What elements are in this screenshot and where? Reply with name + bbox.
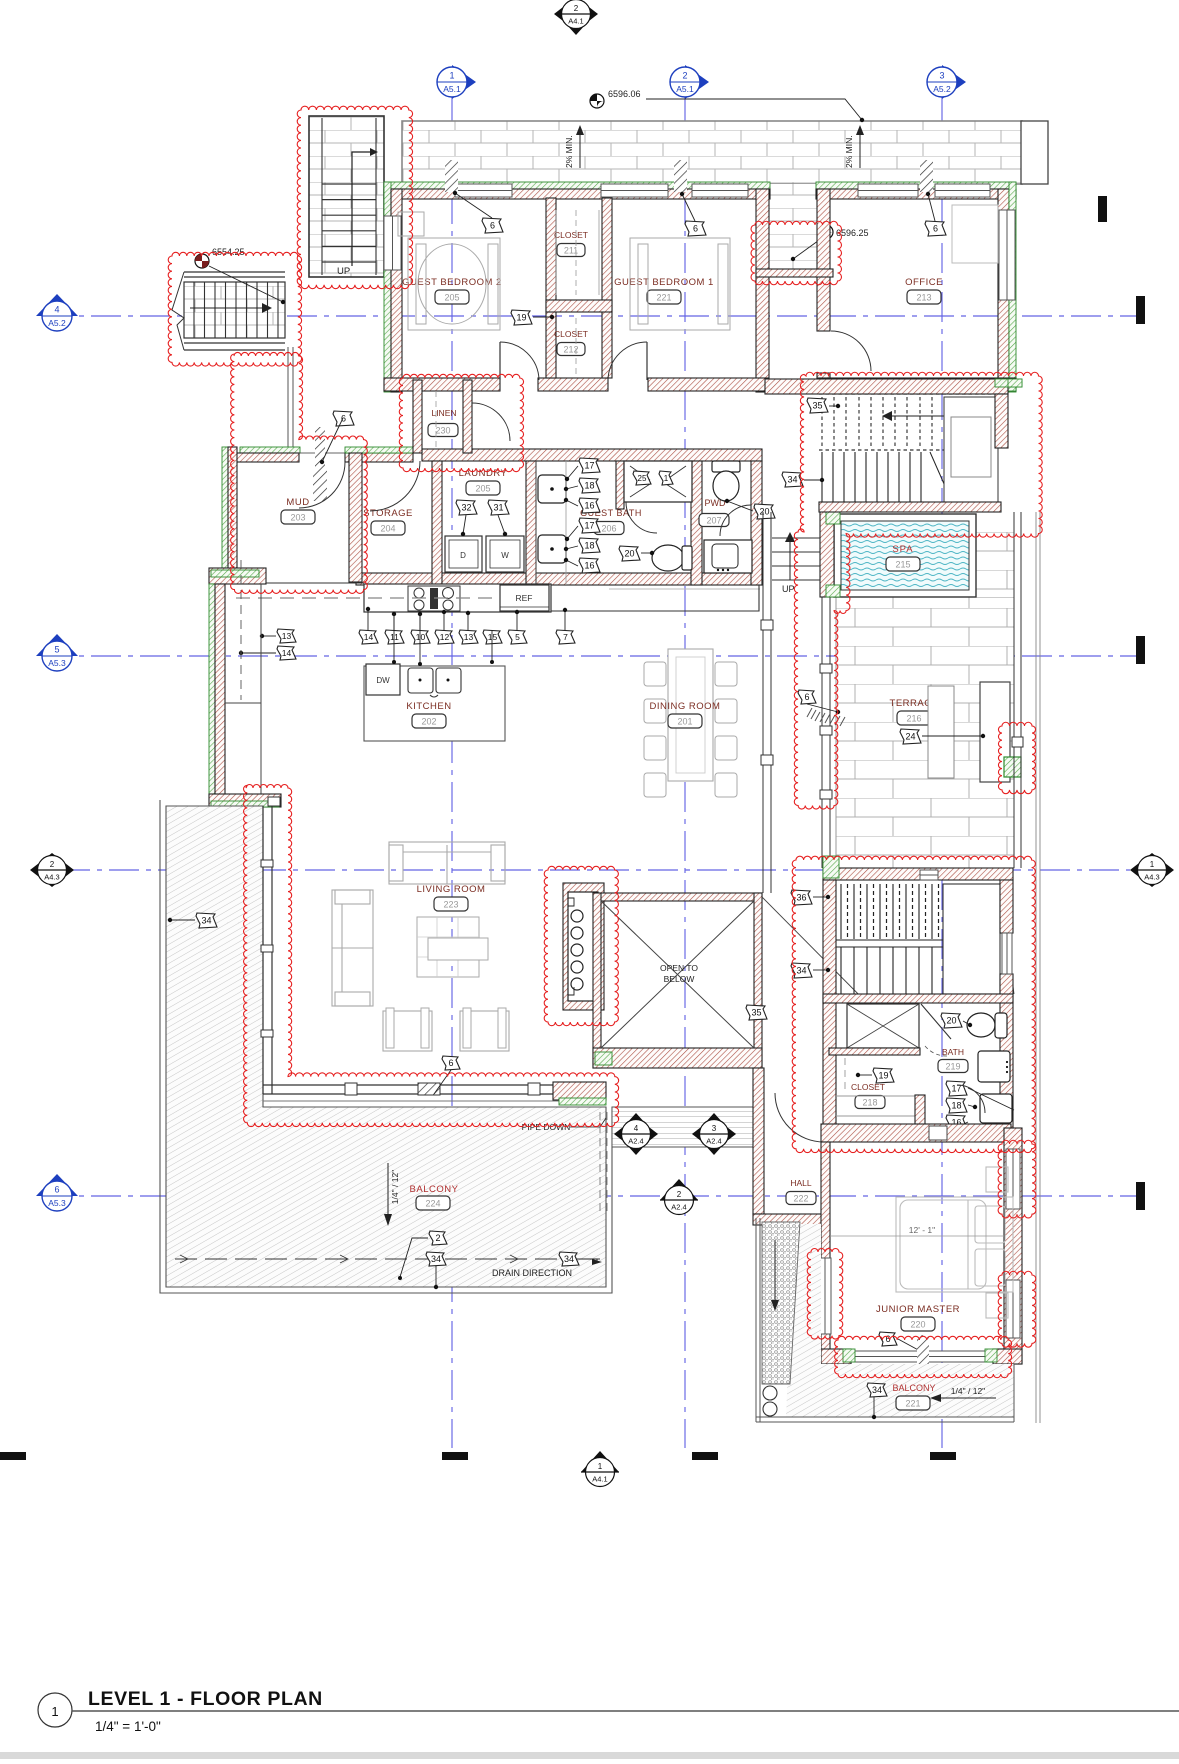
svg-text:18: 18 xyxy=(951,1101,961,1111)
svg-text:34: 34 xyxy=(872,1385,882,1395)
svg-text:34: 34 xyxy=(796,966,806,976)
svg-text:BALCONY: BALCONY xyxy=(892,1383,935,1393)
svg-text:A5.1: A5.1 xyxy=(676,84,694,94)
svg-text:1/4" / 12": 1/4" / 12" xyxy=(390,1170,400,1204)
svg-text:2: 2 xyxy=(677,1190,682,1199)
svg-text:2: 2 xyxy=(574,4,579,13)
svg-text:12' - 1": 12' - 1" xyxy=(909,1225,935,1235)
svg-text:UP: UP xyxy=(337,266,350,277)
svg-text:221: 221 xyxy=(905,1399,920,1409)
svg-text:D: D xyxy=(460,551,466,560)
svg-text:34: 34 xyxy=(431,1254,441,1264)
svg-text:2: 2 xyxy=(435,1233,440,1243)
svg-text:6596.25: 6596.25 xyxy=(836,228,869,238)
svg-text:202: 202 xyxy=(421,717,436,727)
svg-text:36: 36 xyxy=(796,893,806,903)
svg-text:3: 3 xyxy=(712,1124,717,1133)
svg-text:A2.4: A2.4 xyxy=(671,1203,686,1212)
svg-text:A4.1: A4.1 xyxy=(592,1475,607,1484)
svg-text:2% MIN.: 2% MIN. xyxy=(564,135,574,168)
svg-text:20: 20 xyxy=(946,1016,956,1026)
svg-text:2: 2 xyxy=(50,860,55,869)
svg-text:17: 17 xyxy=(584,461,594,471)
svg-text:1: 1 xyxy=(51,1704,58,1719)
svg-text:13: 13 xyxy=(282,631,292,641)
svg-text:6: 6 xyxy=(341,414,346,424)
svg-text:4: 4 xyxy=(634,1124,639,1133)
svg-text:LIVING ROOM: LIVING ROOM xyxy=(417,884,486,895)
svg-text:5: 5 xyxy=(54,645,59,655)
svg-text:203: 203 xyxy=(290,513,305,523)
svg-text:205: 205 xyxy=(475,484,490,494)
svg-text:32: 32 xyxy=(461,503,471,513)
svg-text:213: 213 xyxy=(916,293,931,303)
svg-text:5: 5 xyxy=(515,632,520,642)
svg-text:207: 207 xyxy=(706,516,721,526)
svg-text:20: 20 xyxy=(624,549,634,559)
svg-text:1/4" = 1'-0": 1/4" = 1'-0" xyxy=(95,1719,161,1734)
svg-text:KITCHEN: KITCHEN xyxy=(406,701,451,712)
svg-text:218: 218 xyxy=(862,1098,877,1108)
svg-text:6: 6 xyxy=(933,224,938,234)
svg-text:2: 2 xyxy=(682,71,687,81)
svg-text:201: 201 xyxy=(677,717,692,727)
svg-text:CLOSET: CLOSET xyxy=(554,329,588,339)
svg-text:16: 16 xyxy=(584,561,594,571)
svg-text:OFFICE: OFFICE xyxy=(905,277,943,288)
svg-text:A4.3: A4.3 xyxy=(44,873,59,882)
svg-text:230: 230 xyxy=(435,426,450,436)
svg-text:BELOW: BELOW xyxy=(664,974,695,984)
svg-text:3: 3 xyxy=(939,71,944,81)
svg-text:MUD: MUD xyxy=(286,497,309,508)
svg-text:34: 34 xyxy=(201,916,211,926)
svg-text:JUNIOR MASTER: JUNIOR MASTER xyxy=(876,1304,960,1315)
svg-text:UP: UP xyxy=(782,584,795,594)
svg-text:BATH: BATH xyxy=(942,1047,964,1057)
svg-text:18: 18 xyxy=(584,481,594,491)
svg-text:205: 205 xyxy=(444,293,459,303)
svg-text:GUEST BEDROOM 2: GUEST BEDROOM 2 xyxy=(402,277,502,288)
svg-text:20: 20 xyxy=(759,507,769,517)
svg-text:LINEN: LINEN xyxy=(431,408,456,418)
svg-text:A2.4: A2.4 xyxy=(706,1137,721,1146)
svg-text:1: 1 xyxy=(664,474,669,483)
svg-text:223: 223 xyxy=(443,900,458,910)
svg-text:DW: DW xyxy=(376,676,390,685)
svg-text:14: 14 xyxy=(364,632,374,642)
svg-text:34: 34 xyxy=(787,475,797,485)
svg-text:W: W xyxy=(501,551,509,560)
svg-text:219: 219 xyxy=(945,1062,960,1072)
svg-text:35: 35 xyxy=(751,1008,761,1018)
svg-text:STORAGE: STORAGE xyxy=(363,508,413,519)
svg-text:206: 206 xyxy=(601,524,616,534)
svg-text:17: 17 xyxy=(584,521,594,531)
svg-text:A5.3: A5.3 xyxy=(48,658,66,668)
svg-text:A5.2: A5.2 xyxy=(48,318,66,328)
svg-text:1: 1 xyxy=(1150,860,1155,869)
svg-text:A4.3: A4.3 xyxy=(1144,873,1159,882)
svg-text:25: 25 xyxy=(638,474,647,483)
svg-text:DINING ROOM: DINING ROOM xyxy=(650,701,721,712)
svg-text:6: 6 xyxy=(693,224,698,234)
svg-text:6596.06: 6596.06 xyxy=(608,89,641,99)
svg-text:BALCONY: BALCONY xyxy=(410,1184,459,1195)
svg-text:222: 222 xyxy=(793,1194,808,1204)
svg-text:35: 35 xyxy=(812,401,822,411)
svg-text:7: 7 xyxy=(563,632,568,642)
svg-text:A5.3: A5.3 xyxy=(48,1198,66,1208)
svg-text:19: 19 xyxy=(878,1071,888,1081)
svg-text:DRAIN DIRECTION: DRAIN DIRECTION xyxy=(492,1268,572,1278)
svg-text:4: 4 xyxy=(54,305,59,315)
svg-text:HALL: HALL xyxy=(790,1178,812,1188)
svg-text:OPEN TO: OPEN TO xyxy=(660,963,698,973)
svg-text:31: 31 xyxy=(493,503,503,513)
svg-text:1/4" / 12": 1/4" / 12" xyxy=(951,1386,985,1396)
svg-text:A5.2: A5.2 xyxy=(933,84,951,94)
svg-text:1: 1 xyxy=(598,1462,603,1471)
svg-text:6: 6 xyxy=(54,1185,59,1195)
svg-text:LEVEL 1 - FLOOR PLAN: LEVEL 1 - FLOOR PLAN xyxy=(88,1688,323,1710)
svg-text:CLOSET: CLOSET xyxy=(554,230,588,240)
svg-text:REF: REF xyxy=(516,593,533,603)
svg-text:13: 13 xyxy=(464,632,474,642)
svg-text:11: 11 xyxy=(390,632,399,642)
svg-text:10: 10 xyxy=(416,632,426,642)
svg-text:SPA: SPA xyxy=(892,544,913,555)
svg-text:CLOSET: CLOSET xyxy=(851,1082,885,1092)
svg-text:204: 204 xyxy=(380,524,395,534)
svg-text:12: 12 xyxy=(440,632,450,642)
svg-text:1: 1 xyxy=(449,71,454,81)
svg-text:14: 14 xyxy=(282,648,292,658)
svg-text:19: 19 xyxy=(516,313,526,323)
svg-text:18: 18 xyxy=(584,541,594,551)
svg-text:A4.1: A4.1 xyxy=(568,17,583,26)
svg-text:216: 216 xyxy=(906,714,921,724)
svg-text:215: 215 xyxy=(895,560,910,570)
svg-text:2% MIN.: 2% MIN. xyxy=(844,135,854,168)
svg-text:A2.4: A2.4 xyxy=(628,1137,643,1146)
svg-text:A5.1: A5.1 xyxy=(443,84,461,94)
svg-text:15: 15 xyxy=(488,632,498,642)
svg-text:6: 6 xyxy=(490,221,495,231)
svg-text:GUEST BEDROOM 1: GUEST BEDROOM 1 xyxy=(614,277,714,288)
svg-text:220: 220 xyxy=(910,1320,925,1330)
svg-text:24: 24 xyxy=(905,732,915,742)
svg-text:6: 6 xyxy=(804,692,809,702)
svg-text:16: 16 xyxy=(584,501,594,511)
svg-text:6: 6 xyxy=(448,1058,453,1068)
svg-text:221: 221 xyxy=(656,293,671,303)
svg-text:224: 224 xyxy=(425,1199,440,1209)
svg-text:34: 34 xyxy=(564,1254,574,1264)
